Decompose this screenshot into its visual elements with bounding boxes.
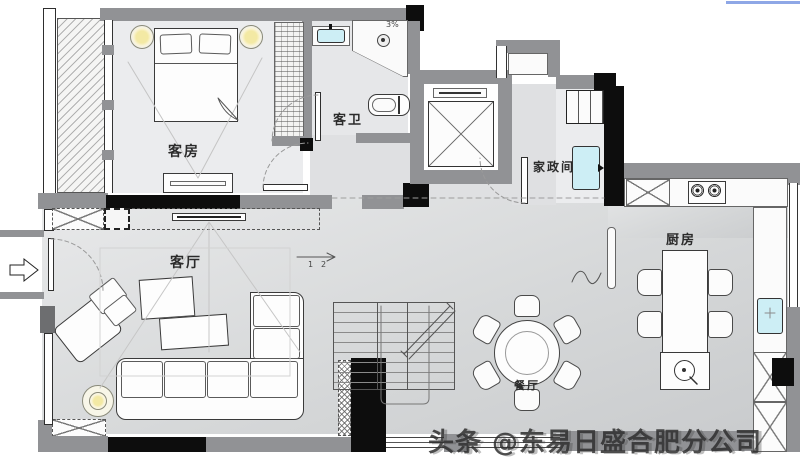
room-label-laundry: 家政间	[533, 158, 575, 175]
watermark-text: 头条 @东易日盛合肥分公司	[428, 422, 800, 459]
room-label-living: 客厅	[170, 252, 202, 272]
stair-number-2: 2	[321, 260, 326, 269]
room-label-dining: 餐厅	[514, 377, 540, 393]
floor-plan: 客房 客卫 家政间 厨房 客厅 餐厅 3% 1 2 头条 @东易日盛合肥分公司	[0, 0, 800, 461]
slope-annotation: 3%	[386, 20, 399, 29]
stair-number-1: 1	[308, 260, 313, 269]
room-label-kitchen: 厨房	[666, 229, 696, 248]
room-label-guest: 客房	[168, 141, 200, 161]
room-label-bath: 客卫	[333, 109, 363, 128]
